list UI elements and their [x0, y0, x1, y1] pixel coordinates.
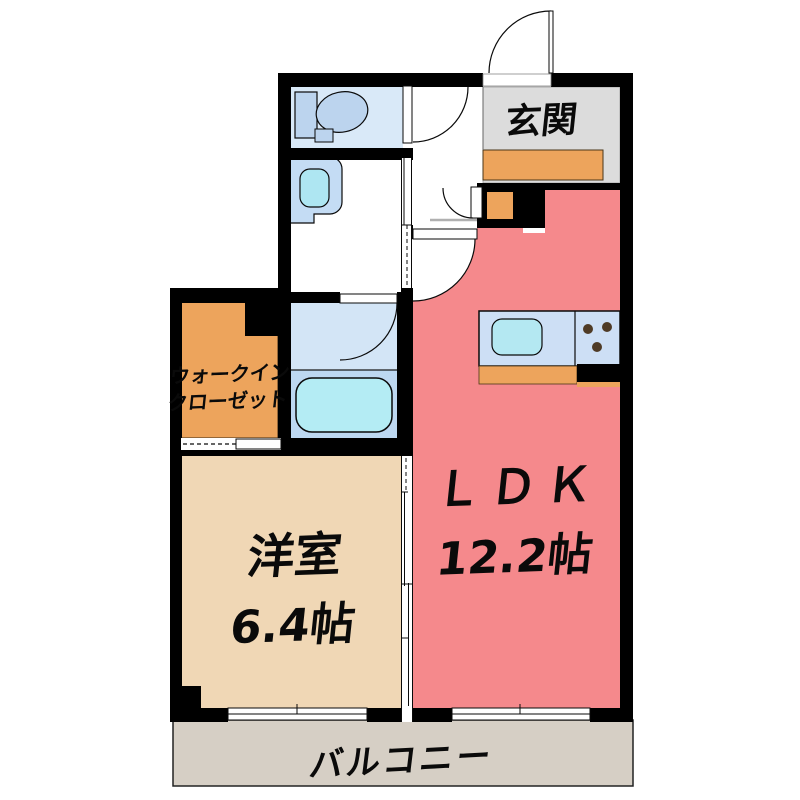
- genkan-small-door-leaf: [471, 187, 482, 218]
- genkan-step-inner: [487, 192, 513, 219]
- floor-plan: 玄関 ＬＤＫ 12.2帖 洋室 6.4帖 ウォークイン クローゼット バルコニー: [0, 0, 800, 800]
- wall-toilet-bottom: [278, 148, 413, 160]
- stove-burner-icon: [602, 322, 612, 332]
- genkan-step: [483, 150, 603, 180]
- western-room-label: 洋室: [245, 527, 345, 585]
- ldk-label: ＬＤＫ: [432, 457, 603, 518]
- wic-label-line1: ウォークイン: [169, 360, 291, 388]
- wall-top-left: [278, 73, 483, 87]
- ldk-size-label: 12.2帖: [434, 527, 596, 585]
- wall-jamb-bottom: [401, 288, 413, 303]
- wic-opening: [181, 438, 281, 450]
- bath-door-leaf: [340, 294, 397, 303]
- wall-left-upper: [278, 73, 291, 303]
- wall-wic-top: [170, 288, 291, 303]
- wall-left-lower: [170, 288, 182, 722]
- western-ldk-sliding-door: [401, 456, 413, 722]
- wall-bath-right: [397, 292, 413, 447]
- western-room-size-label: 6.4帖: [228, 597, 358, 654]
- wic-label-line2: クローゼット: [167, 387, 289, 415]
- sliding-door-body: [401, 456, 413, 722]
- kitchen-sink: [492, 319, 542, 355]
- wall-junction-strip: [545, 183, 620, 190]
- toilet-tank-icon: [295, 92, 317, 138]
- entrance-door-leaf: [549, 11, 553, 73]
- toilet-seat-box-icon: [315, 129, 333, 142]
- bathtub: [296, 378, 392, 432]
- wall-under-wic-opening: [181, 450, 281, 456]
- washroom-sliding-door: [401, 158, 412, 288]
- ldk-door-leaf: [413, 229, 477, 239]
- wall-bottom-c: [413, 708, 452, 722]
- kitchen-floor-strip: [479, 366, 577, 384]
- wic-wall-notch: [245, 300, 278, 336]
- stove-burner-icon: [592, 342, 602, 352]
- genkan-label: 玄関: [503, 98, 579, 143]
- stove-burner-icon: [583, 324, 593, 334]
- wall-jamb-top: [401, 148, 413, 158]
- wic-door-leaf: [236, 439, 281, 449]
- wall-bottom-d: [590, 708, 633, 722]
- kitchen-return-wall: [577, 364, 620, 382]
- washbasin-sink-icon: [300, 169, 329, 207]
- toilet-door-leaf: [403, 86, 412, 143]
- wall-bottom-b: [367, 708, 401, 722]
- entrance-threshold: [483, 74, 551, 86]
- floor-plan-canvas: 玄関 ＬＤＫ 12.2帖 洋室 6.4帖 ウォークイン クローゼット バルコニー: [0, 0, 800, 800]
- kitchen-floor-strip-right: [577, 382, 620, 387]
- wall-right: [620, 73, 633, 722]
- wall-western-top: [278, 438, 413, 456]
